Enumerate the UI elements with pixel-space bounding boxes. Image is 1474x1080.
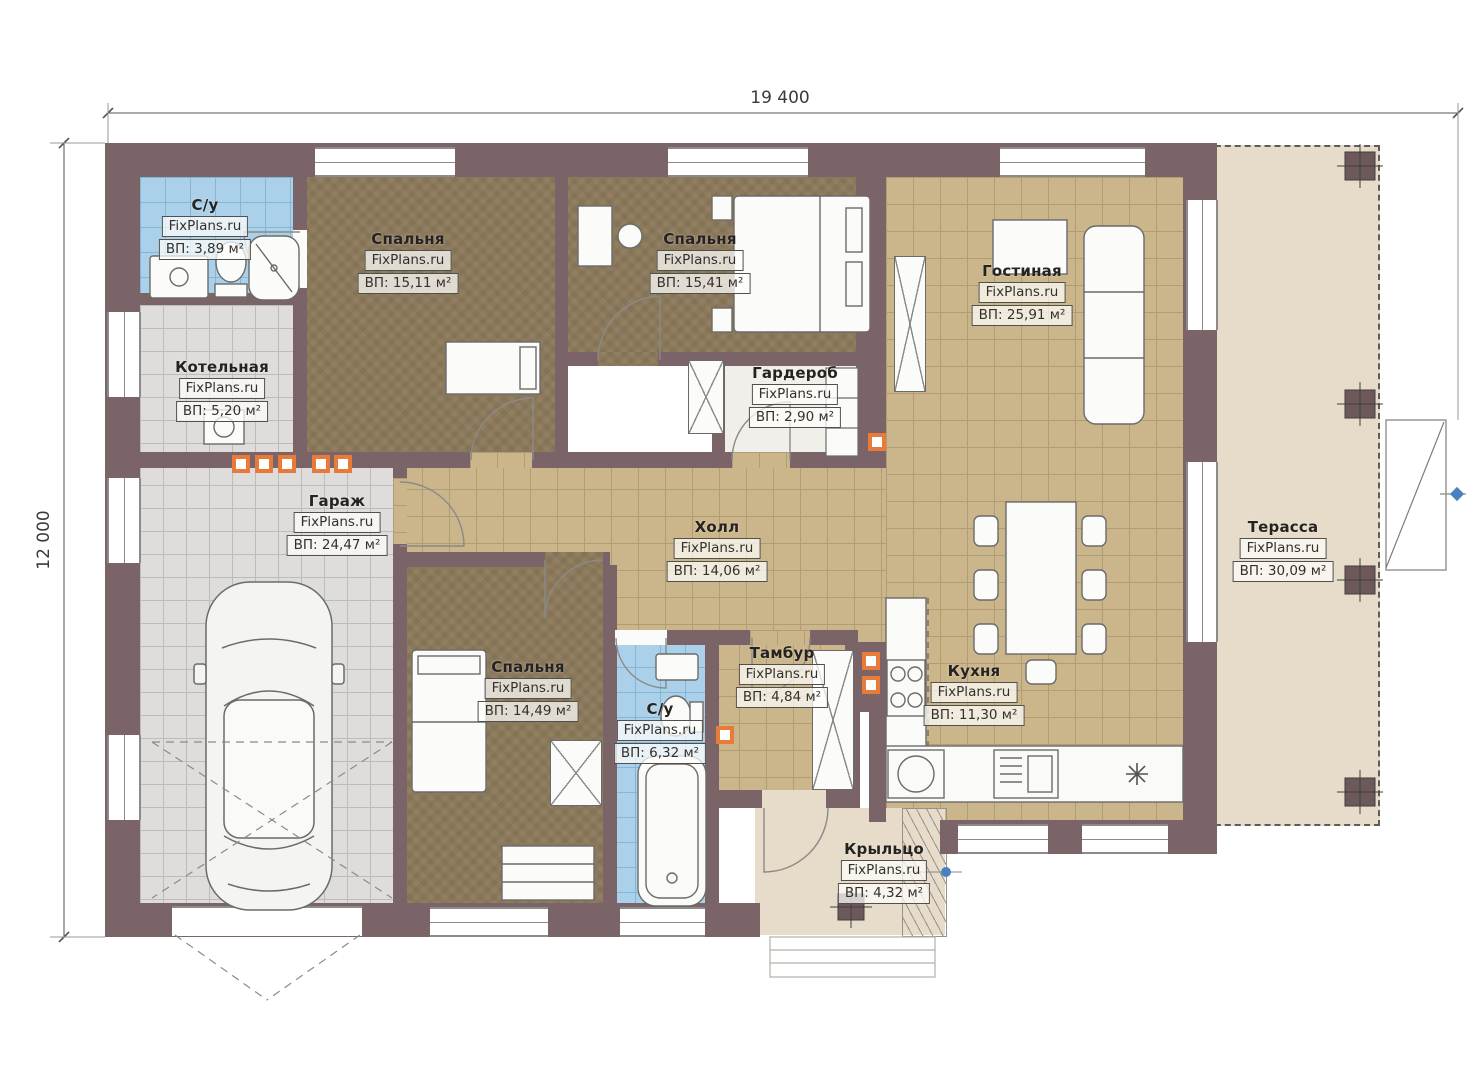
room-watermark: FixPlans.ru: [739, 664, 826, 685]
room-name: Тамбур: [750, 644, 815, 662]
door-opening: [750, 630, 810, 645]
room-area: ВП: 24,47 м²: [287, 535, 388, 556]
room-area: ВП: 15,11 м²: [358, 273, 459, 294]
door-opening: [762, 790, 826, 808]
vent-marker: [716, 726, 734, 744]
room-label-bathroom-1: С/у FixPlans.ru ВП: 3,89 м²: [159, 196, 251, 260]
vent-marker: [862, 652, 880, 670]
room-label-garage: Гараж FixPlans.ru ВП: 24,47 м²: [287, 492, 388, 556]
room-area: ВП: 25,91 м²: [972, 305, 1073, 326]
door-opening: [545, 552, 603, 567]
room-watermark: FixPlans.ru: [931, 682, 1018, 703]
window: [107, 478, 141, 563]
room-name: Гардероб: [752, 364, 838, 382]
wall: [856, 177, 886, 468]
room-name: Крыльцо: [844, 840, 924, 858]
window: [668, 147, 808, 177]
vent-marker: [232, 455, 250, 473]
door-opening: [393, 478, 407, 544]
room-name: Холл: [695, 518, 740, 536]
room-label-living: Гостиная FixPlans.ru ВП: 25,91 м²: [972, 262, 1073, 326]
door-opening: [732, 452, 790, 468]
wall: [140, 293, 293, 305]
room-watermark: FixPlans.ru: [617, 720, 704, 741]
window: [107, 735, 141, 820]
door-opening: [470, 452, 532, 468]
room-name: Терасса: [1248, 518, 1319, 536]
room-watermark: FixPlans.ru: [979, 282, 1066, 303]
room-area: ВП: 6,32 м²: [614, 743, 706, 764]
room-area: ВП: 14,49 м²: [478, 701, 579, 722]
window: [1186, 200, 1218, 330]
room-label-wardrobe: Гардероб FixPlans.ru ВП: 2,90 м²: [749, 364, 841, 428]
room-watermark: FixPlans.ru: [841, 860, 928, 881]
terrace-door-opening: [1186, 462, 1218, 642]
wall: [869, 700, 886, 822]
room-label-hall: Холл FixPlans.ru ВП: 14,06 м²: [667, 518, 768, 582]
living-cabinet: [894, 256, 926, 392]
wall: [293, 177, 307, 460]
room-area: ВП: 4,32 м²: [838, 883, 930, 904]
room-name: Спальня: [663, 230, 736, 248]
room-area: ВП: 2,90 м²: [749, 407, 841, 428]
room-watermark: FixPlans.ru: [1240, 538, 1327, 559]
room-area: ВП: 15,41 м²: [650, 273, 751, 294]
window: [958, 824, 1048, 854]
room-label-kitchen: Кухня FixPlans.ru ВП: 11,30 м²: [924, 662, 1025, 726]
vent-marker: [278, 455, 296, 473]
room-label-bathroom-2: С/у FixPlans.ru ВП: 6,32 м²: [614, 700, 706, 764]
vent-marker: [312, 455, 330, 473]
window: [430, 907, 548, 937]
vent-marker: [868, 433, 886, 451]
room-watermark: FixPlans.ru: [294, 512, 381, 533]
door-opening: [293, 230, 307, 288]
room-area: ВП: 4,84 м²: [736, 687, 828, 708]
room-name: Гостиная: [982, 262, 1062, 280]
window: [1082, 824, 1168, 854]
room-name: С/у: [192, 196, 219, 214]
room-floor-bedroom-1: [300, 177, 560, 460]
room-label-bedroom-1: Спальня FixPlans.ru ВП: 15,11 м²: [358, 230, 459, 294]
bedroom3-cabinet: [550, 740, 602, 806]
room-area: ВП: 14,06 м²: [667, 561, 768, 582]
room-name: Кухня: [948, 662, 1001, 680]
terrace-steps: [1386, 420, 1466, 570]
room-watermark: FixPlans.ru: [179, 378, 266, 399]
room-label-terrace: Терасса FixPlans.ru ВП: 30,09 м²: [1233, 518, 1334, 582]
door-opening: [598, 352, 658, 366]
dimension-top: 19 400: [750, 88, 809, 108]
window: [620, 907, 705, 937]
wardrobe-cabinet: [688, 360, 724, 434]
room-watermark: FixPlans.ru: [657, 250, 744, 271]
vent-marker: [334, 455, 352, 473]
door-opening: [615, 630, 667, 645]
vent-marker: [255, 455, 273, 473]
room-label-bedroom-3: Спальня FixPlans.ru ВП: 14,49 м²: [478, 658, 579, 722]
room-area: ВП: 30,09 м²: [1233, 561, 1334, 582]
room-floor-bedroom-3: [405, 565, 605, 903]
room-label-boiler: Котельная FixPlans.ru ВП: 5,20 м²: [175, 358, 269, 422]
room-label-tambour: Тамбур FixPlans.ru ВП: 4,84 м²: [736, 644, 828, 708]
room-name: Котельная: [175, 358, 269, 376]
window: [315, 147, 455, 177]
room-floor-bathroom-2: [610, 642, 707, 903]
room-name: С/у: [647, 700, 674, 718]
vent-marker: [862, 676, 880, 694]
room-name: Спальня: [371, 230, 444, 248]
window: [1000, 147, 1145, 177]
wall: [705, 642, 719, 903]
room-area: ВП: 3,89 м²: [159, 239, 251, 260]
wall: [555, 177, 568, 468]
room-watermark: FixPlans.ru: [752, 384, 839, 405]
room-area: ВП: 11,30 м²: [924, 705, 1025, 726]
room-name: Спальня: [491, 658, 564, 676]
room-area: ВП: 5,20 м²: [176, 401, 268, 422]
room-watermark: FixPlans.ru: [485, 678, 572, 699]
room-watermark: FixPlans.ru: [365, 250, 452, 271]
room-label-bedroom-2: Спальня FixPlans.ru ВП: 15,41 м²: [650, 230, 751, 294]
porch-steps: [770, 937, 935, 977]
floor-plan: 19 400 12 000 С/у FixPlans.ru ВП: 3,89 м…: [0, 0, 1474, 1080]
window: [107, 312, 141, 397]
room-watermark: FixPlans.ru: [674, 538, 761, 559]
room-name: Гараж: [309, 492, 365, 510]
room-label-porch: Крыльцо FixPlans.ru ВП: 4,32 м²: [838, 840, 930, 904]
dimension-left: 12 000: [34, 510, 54, 569]
garage-door-opening: [172, 906, 362, 936]
room-watermark: FixPlans.ru: [162, 216, 249, 237]
